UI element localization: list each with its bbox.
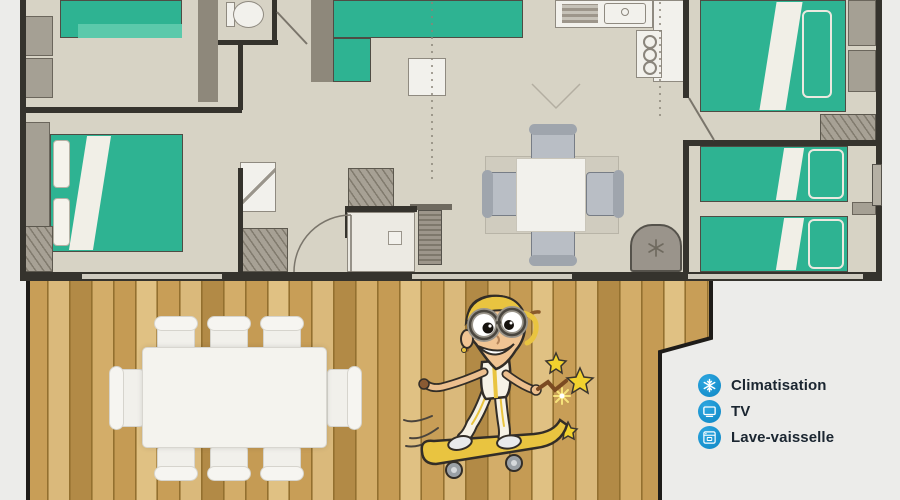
skateboard <box>422 420 567 478</box>
amenities-legend: Climatisation TV Lave-vaisselle <box>698 372 888 450</box>
skater-mascot <box>396 292 608 497</box>
patio-chair <box>118 369 144 427</box>
dishwasher-icon <box>698 426 721 449</box>
patio-chair <box>210 446 248 472</box>
legend-label: Lave-vaisselle <box>731 429 834 446</box>
patio-chair <box>263 446 301 472</box>
mascot-head <box>461 296 539 369</box>
tv-icon <box>698 400 721 423</box>
legend-label: TV <box>731 403 750 420</box>
screenshot-root: Climatisation TV Lave-vaisselle <box>0 0 900 500</box>
mascot-arms <box>419 372 541 395</box>
legend-item-tv: TV <box>698 398 888 424</box>
floorplan <box>20 0 882 281</box>
earring <box>462 348 467 353</box>
toilet-partition <box>277 12 307 44</box>
patio-table <box>142 347 327 448</box>
plan-annotations <box>20 0 882 281</box>
patio-chair <box>327 369 353 427</box>
door-arc <box>294 215 351 272</box>
legend-item-climatisation: Climatisation <box>698 372 888 398</box>
legend-label: Climatisation <box>731 377 826 394</box>
entrance-door-leaf <box>689 98 714 140</box>
legend-item-lave-vaisselle: Lave-vaisselle <box>698 424 888 450</box>
snowflake-icon <box>698 374 721 397</box>
patio-chair <box>157 446 195 472</box>
cabinet-doors-open <box>532 84 580 108</box>
